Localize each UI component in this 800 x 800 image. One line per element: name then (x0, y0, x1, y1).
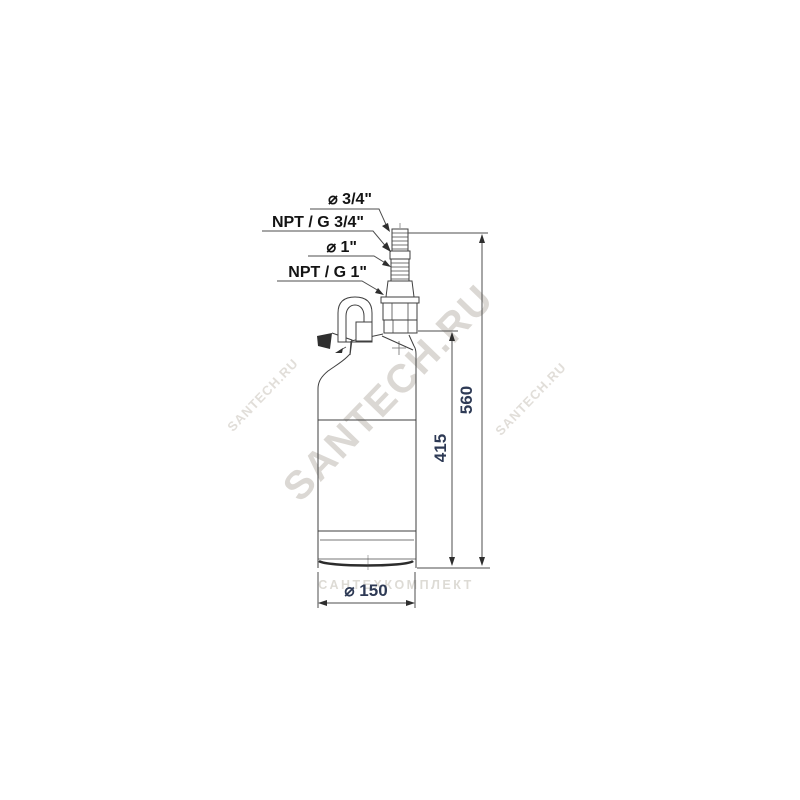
watermark-bottom: САНТЕХКОМПЛЕКТ (318, 578, 474, 592)
pump-dimensional-drawing: SANTECH.RU SANTECH.RU SANTECH.RU САНТЕХК… (0, 0, 800, 800)
carry-bracket (317, 333, 352, 355)
watermark-left: SANTECH.RU (224, 355, 301, 434)
label-thread-npt-g-1: NPT / G 1" (288, 264, 367, 281)
dimension-text-150: ⌀ 150 (344, 581, 387, 600)
label-outlet-diameter-1: ⌀ 1" (326, 239, 357, 256)
callout-labels: ⌀ 3/4" NPT / G 3/4" ⌀ 1" NPT / G 1" (272, 191, 372, 281)
label-thread-npt-g-3-4: NPT / G 3/4" (272, 214, 364, 231)
label-outlet-diameter-3-4: ⌀ 3/4" (328, 191, 372, 208)
drawing-canvas: SANTECH.RU SANTECH.RU SANTECH.RU САНТЕХК… (0, 0, 800, 800)
dimension-text-560: 560 (457, 386, 476, 414)
watermark-right: SANTECH.RU (492, 359, 569, 438)
handle (338, 297, 372, 342)
dimension-text-415: 415 (431, 434, 450, 462)
